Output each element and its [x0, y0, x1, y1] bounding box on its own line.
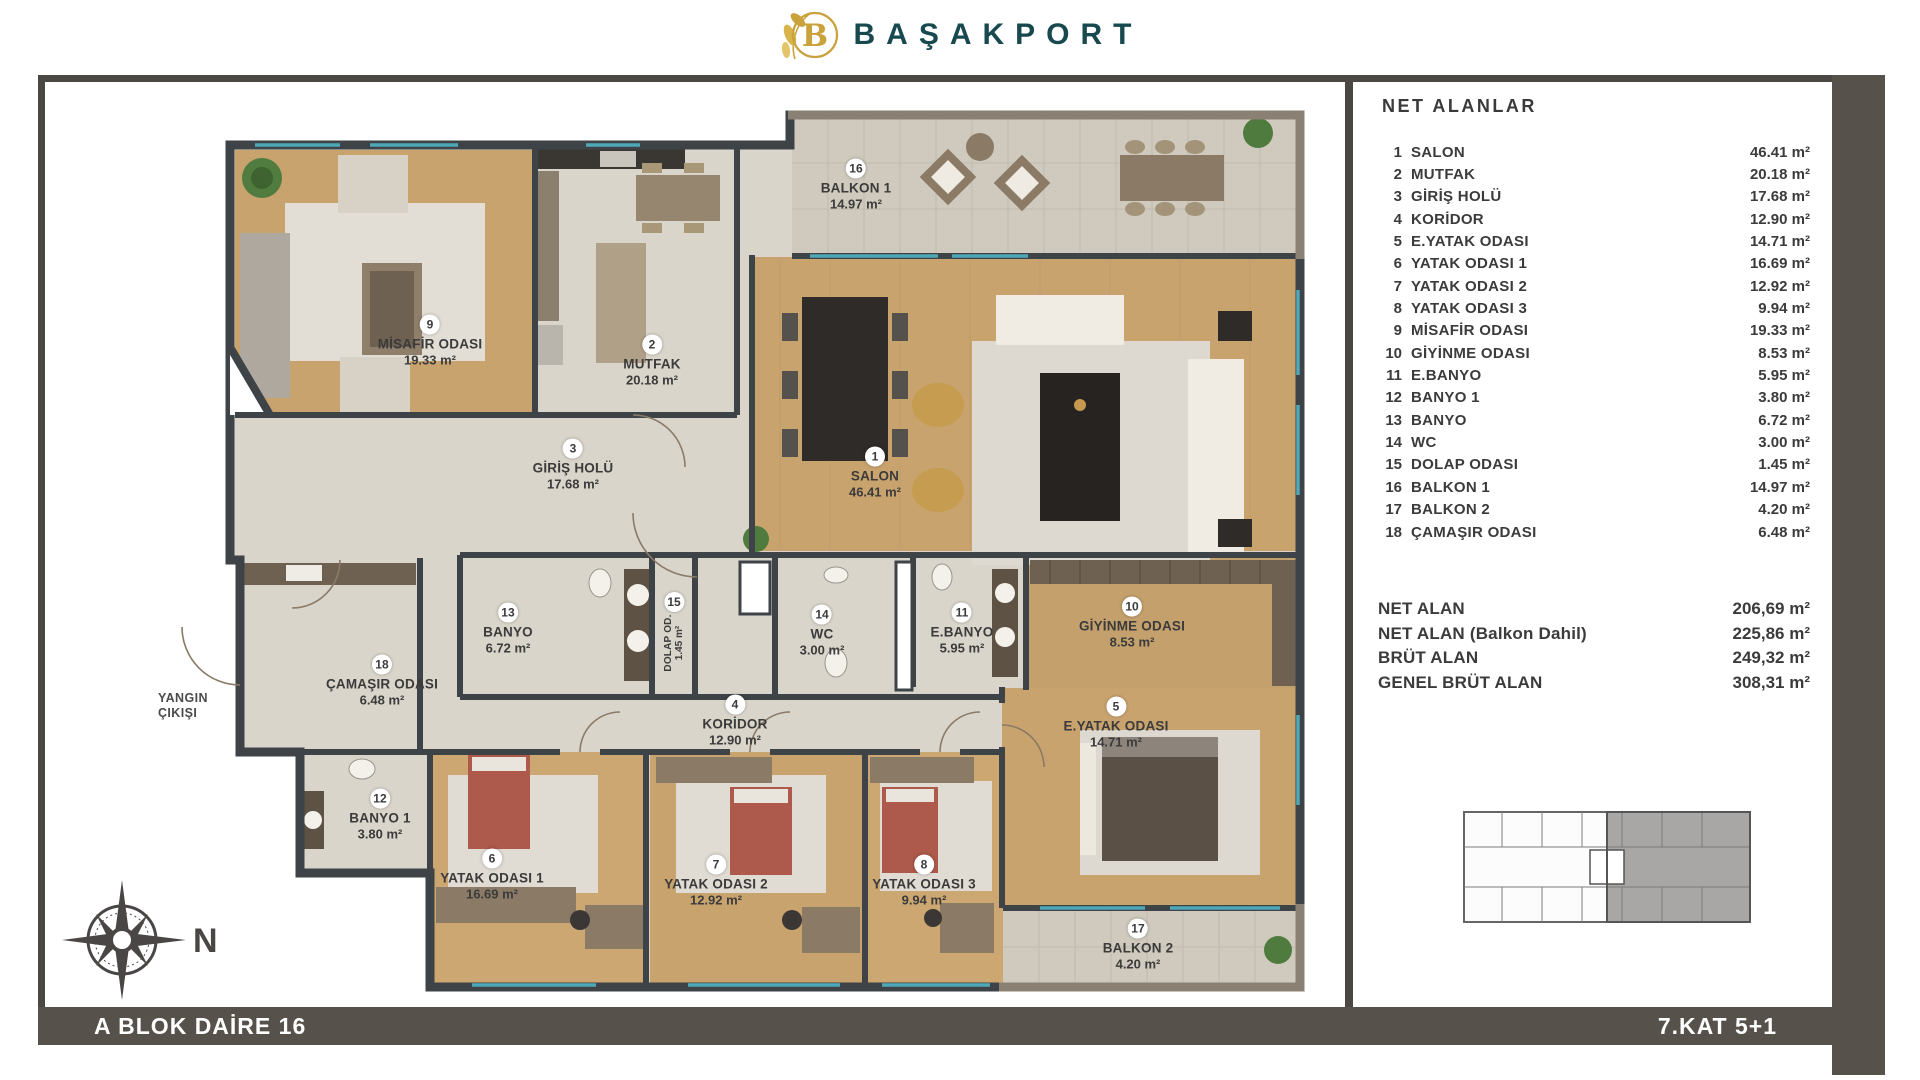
footer-bar: A BLOK DAİRE 16 7.KAT 5+1 [38, 1007, 1885, 1045]
wardrobe [1030, 560, 1296, 584]
room-label-e-yatak-odasi: 5E.YATAK ODASI14.71 m² [1063, 697, 1168, 750]
bench [1080, 743, 1096, 855]
svg-text:N: N [193, 922, 218, 960]
balcony-dining-table [1120, 155, 1224, 201]
area-row: 8YATAK ODASI 39.94 m² [1378, 297, 1810, 319]
chair [570, 910, 590, 930]
area-row: 13BANYO6.72 m² [1378, 409, 1810, 431]
sofa [996, 295, 1124, 345]
sink [304, 811, 322, 829]
room-label-wc: 14WC3.00 m² [800, 605, 845, 658]
tv-unit [1040, 373, 1120, 521]
armchair [912, 468, 964, 512]
room-label-balkon-2: 17BALKON 24.20 m² [1103, 919, 1174, 972]
toilet [349, 759, 375, 779]
net-areas-title: NET ALANLAR [1382, 96, 1537, 117]
brand-name: BAŞAKPORT [853, 18, 1142, 52]
armchair [338, 155, 408, 213]
room-label-yatak-odasi-3: 8YATAK ODASI 39.94 m² [872, 855, 976, 908]
net-areas-panel: 1SALON46.41 m² 2MUTFAK20.18 m² 3GİRİŞ HO… [1378, 141, 1810, 543]
room-label-yatak-odasi-1: 6YATAK ODASI 116.69 m² [440, 849, 544, 902]
summary-row: GENEL BRÜT ALAN308,31 m² [1378, 671, 1810, 696]
room-label-dolap-odasi: 15 DOLAP OD.1.45 m² [645, 592, 702, 654]
room-label-camasir-odasi: 18ÇAMAŞIR ODASI6.48 m² [326, 655, 438, 708]
toilet [932, 564, 952, 590]
wardrobe [656, 757, 772, 783]
desk [802, 907, 860, 953]
room-label-yatak-odasi-2: 7YATAK ODASI 212.92 m² [664, 855, 768, 908]
stove [600, 151, 636, 167]
frame-right-border [1832, 75, 1885, 1075]
area-summary: NET ALAN206,69 m² NET ALAN (Balkon Dahil… [1378, 597, 1810, 695]
room-label-balkon-1: 16BALKON 114.97 m² [821, 159, 892, 212]
footer-floor-label: 7.KAT 5+1 [1658, 1007, 1777, 1045]
desk [585, 905, 645, 949]
fridge [537, 325, 563, 365]
desk [940, 903, 994, 953]
plant [743, 526, 769, 552]
armchair [912, 383, 964, 427]
brand-header: B BAŞAKPORT [0, 4, 1920, 66]
area-row: 9MİSAFİR ODASI19.33 m² [1378, 320, 1810, 342]
room-label-banyo: 13BANYO6.72 m² [483, 603, 533, 656]
room-label-mutfak: 2MUTFAK20.18 m² [623, 335, 680, 388]
area-row: 7YATAK ODASI 212.92 m² [1378, 275, 1810, 297]
laundry-counter [244, 563, 416, 585]
area-row: 17BALKON 24.20 m² [1378, 499, 1810, 521]
area-row: 6YATAK ODASI 116.69 m² [1378, 253, 1810, 275]
room-label-e-banyo: 11E.BANYO5.95 m² [931, 603, 994, 656]
frame-divider [1345, 75, 1353, 1007]
area-row: 2MUTFAK20.18 m² [1378, 163, 1810, 185]
kitchen-table [636, 175, 720, 221]
area-row: 11E.BANYO5.95 m² [1378, 364, 1810, 386]
footer-block-label: A BLOK DAİRE 16 [94, 1007, 306, 1045]
sink [995, 583, 1015, 603]
room-label-giris-holu: 3GİRİŞ HOLÜ17.68 m² [533, 439, 614, 492]
area-row: 12BANYO 13.80 m² [1378, 387, 1810, 409]
side-table [1218, 311, 1252, 341]
summary-row: BRÜT ALAN249,32 m² [1378, 646, 1810, 671]
sink [286, 565, 322, 581]
room-label-koridor: 4KORİDOR12.90 m² [702, 695, 767, 748]
summary-row: NET ALAN206,69 m² [1378, 597, 1810, 622]
toilet [589, 569, 611, 597]
sink [824, 567, 848, 583]
area-row: 10GİYİNME ODASI8.53 m² [1378, 342, 1810, 364]
area-row: 16BALKON 114.97 m² [1378, 476, 1810, 498]
shaft [740, 562, 770, 614]
room-label-salon: 1 SALON 46.41 m² [849, 447, 901, 500]
floor-plan: N 1 SALON 46.41 m² 2MUTFAK20.18 m² 3GİRİ… [40, 75, 1345, 1007]
wardrobe [1272, 584, 1296, 686]
shaft [896, 562, 912, 690]
side-table [1218, 519, 1252, 547]
chair [924, 909, 942, 927]
wardrobe [870, 757, 974, 783]
plant [1264, 936, 1292, 964]
brand-logo-icon: B [777, 5, 841, 65]
area-row: 18ÇAMAŞIR ODASI6.48 m² [1378, 521, 1810, 543]
area-row: 15DOLAP ODASI1.45 m² [1378, 454, 1810, 476]
dining-table [802, 297, 888, 461]
chair [782, 910, 802, 930]
area-row: 14WC3.00 m² [1378, 431, 1810, 453]
fire-exit-label: YANGIN ÇIKIŞI [158, 691, 208, 721]
building-key-plan [1452, 802, 1762, 937]
area-row: 1SALON46.41 m² [1378, 141, 1810, 163]
svg-text:B: B [802, 18, 828, 54]
plant [1243, 118, 1273, 148]
round-table [966, 133, 994, 161]
room-label-giyinme-odasi: 10GİYİNME ODASI8.53 m² [1079, 597, 1185, 650]
compass-rose: N [62, 880, 218, 1000]
summary-row: NET ALAN (Balkon Dahil)225,86 m² [1378, 622, 1810, 647]
sink [995, 627, 1015, 647]
area-row: 4KORİDOR12.90 m² [1378, 208, 1810, 230]
area-row: 3GİRİŞ HOLÜ17.68 m² [1378, 186, 1810, 208]
area-row: 5E.YATAK ODASI14.71 m² [1378, 230, 1810, 252]
room-label-misafir-odasi: 9MİSAFİR ODASI19.33 m² [378, 315, 483, 368]
room-label-banyo-1: 12BANYO 13.80 m² [349, 789, 410, 842]
